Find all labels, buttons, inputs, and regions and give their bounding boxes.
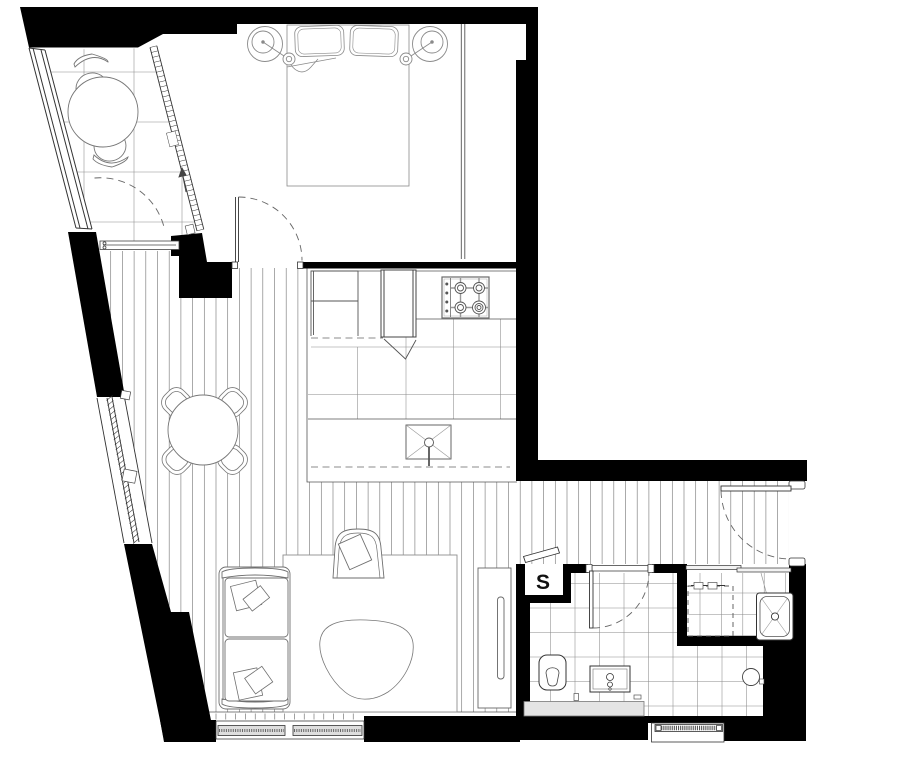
svg-text:S: S	[536, 571, 550, 594]
